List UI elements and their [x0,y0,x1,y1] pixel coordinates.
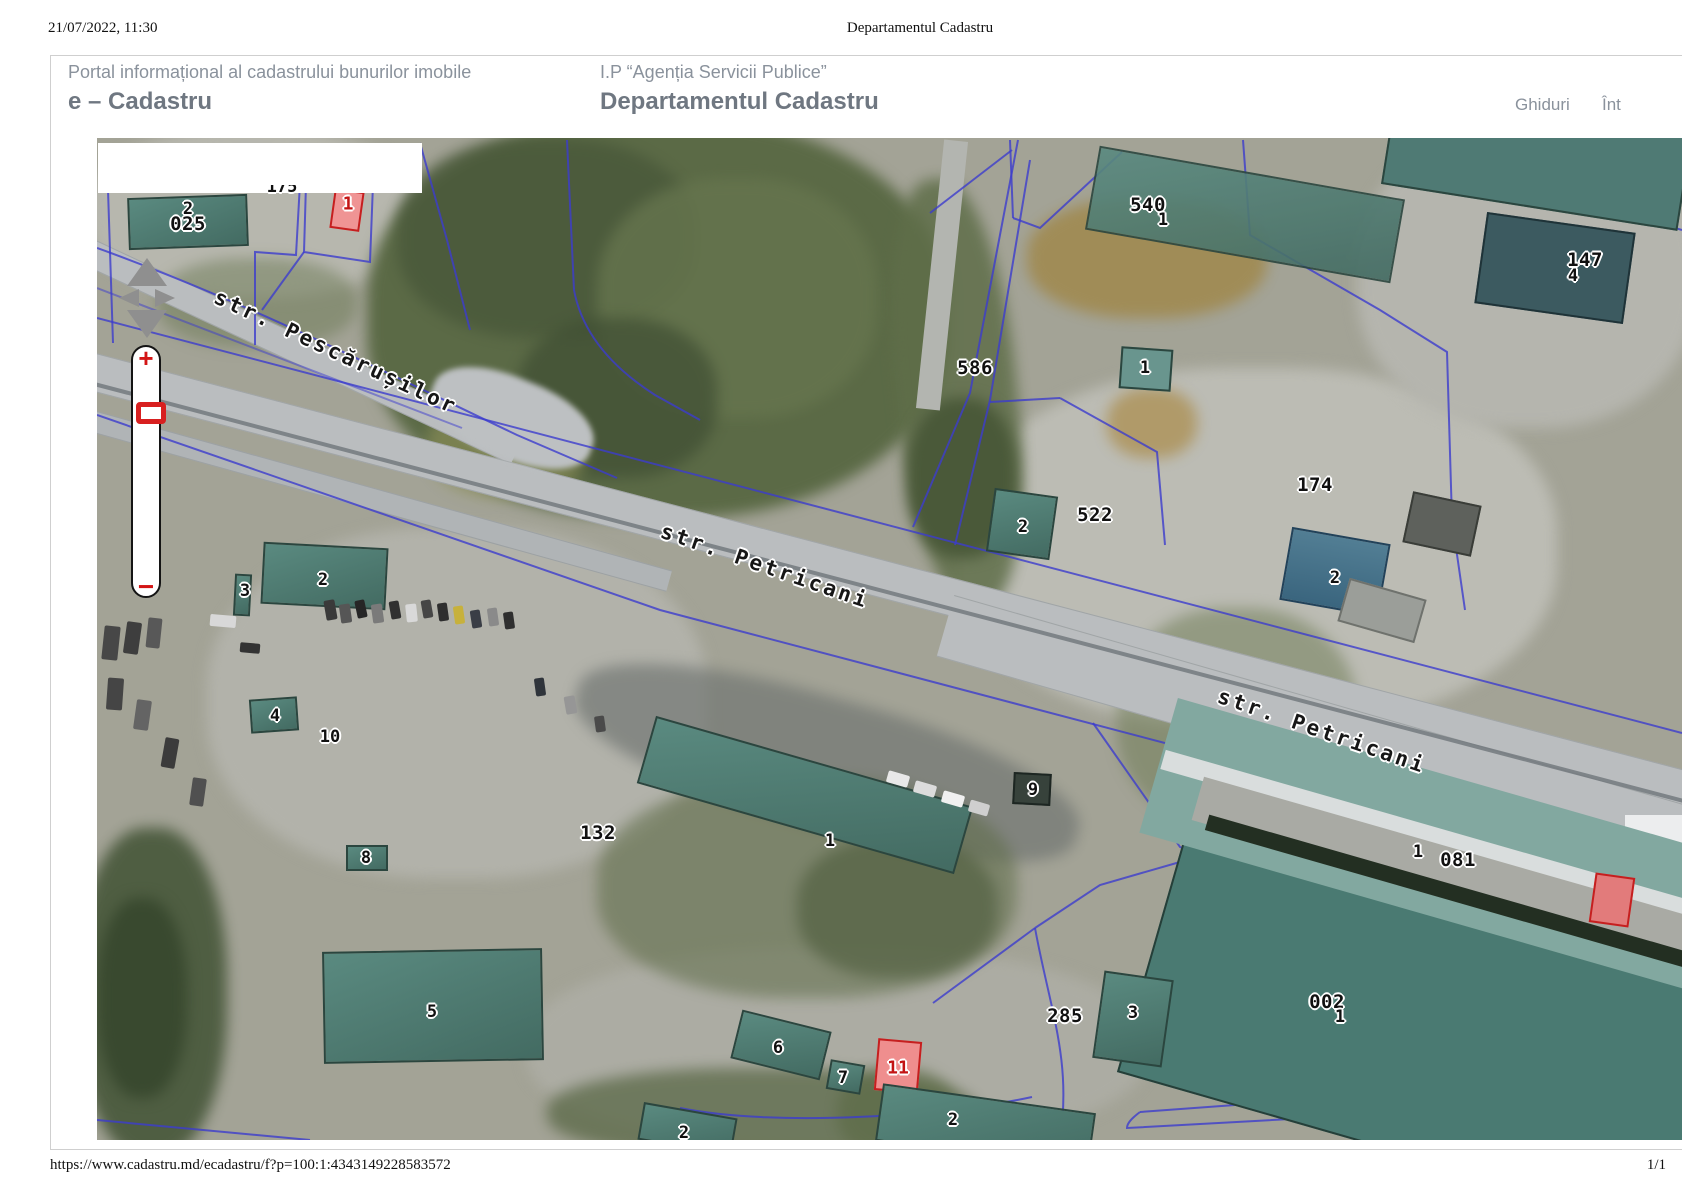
zoom-slider-handle[interactable] [136,402,166,424]
zoom-slider[interactable]: + − [131,345,161,598]
map-label: 2 [1330,568,1340,588]
pan-down-icon [127,310,167,338]
zoom-in-button[interactable]: + [133,345,159,371]
agency-title: Departamentul Cadastru [600,88,879,116]
map-label: 1 [1413,842,1423,862]
partial-label-175: 175 [247,185,317,196]
map-label: 5 [427,1002,437,1022]
nav-intrebari-link[interactable]: Înt [1602,95,1621,115]
map-label: 025 [170,213,206,235]
agency-subtitle: I.P “Agenția Servicii Publice” [600,62,827,83]
map-label: 2 [318,570,328,590]
map-label: 3 [240,581,250,601]
pan-up-icon [127,258,167,286]
map-label: 1 [1335,1007,1345,1027]
map-label: 2 [948,1110,958,1130]
map-label: 081 [1440,849,1476,871]
map-label: 174 [1297,474,1333,496]
map-label: 7 [838,1068,848,1088]
vehicle [210,614,237,628]
nav-ghiduri-link[interactable]: Ghiduri [1515,95,1570,115]
vehicle [594,715,606,732]
map-label: 2 [1018,517,1028,537]
map-label: 11 [887,1058,909,1079]
portal-title: e – Cadastru [68,88,212,116]
vehicle [405,603,418,622]
pan-left-icon [119,289,139,307]
map-label: 10 [320,727,340,747]
vehicle [503,611,515,629]
footer-page-number: 1/1 [1647,1157,1666,1174]
pan-control[interactable] [117,256,177,340]
zoom-out-button[interactable]: − [133,574,159,600]
pan-right-icon [155,289,175,307]
map-label: 6 [773,1038,783,1058]
print-datetime: 21/07/2022, 11:30 [48,20,157,37]
vehicle [240,642,261,654]
portal-subtitle: Portal informațional al cadastrului bunu… [68,62,471,83]
map-label: 4 [1568,266,1578,286]
map-label: 285 [1047,1005,1083,1027]
map-label: 1 [1140,358,1150,378]
map-label: 132 [580,822,616,844]
map-label: 586 [957,357,993,379]
building-red [1589,872,1636,927]
map-label: 3 [1128,1003,1138,1023]
print-title: Departamentul Cadastru [847,20,993,37]
map-label: 4 [270,706,280,726]
map-label: 1 [825,831,835,851]
map-label: 9 [1028,780,1038,800]
map-label: 2 [679,1123,689,1140]
vehicle [106,677,124,710]
map-label: 1 [343,194,354,215]
map-label: 522 [1077,504,1113,526]
footer-url: https://www.cadastru.md/ecadastru/f?p=10… [50,1157,451,1174]
map-canvas[interactable]: 2025154011474586152221742324101328195671… [97,138,1682,1140]
map-label: 8 [361,848,371,868]
map-label: 1 [1158,210,1168,230]
